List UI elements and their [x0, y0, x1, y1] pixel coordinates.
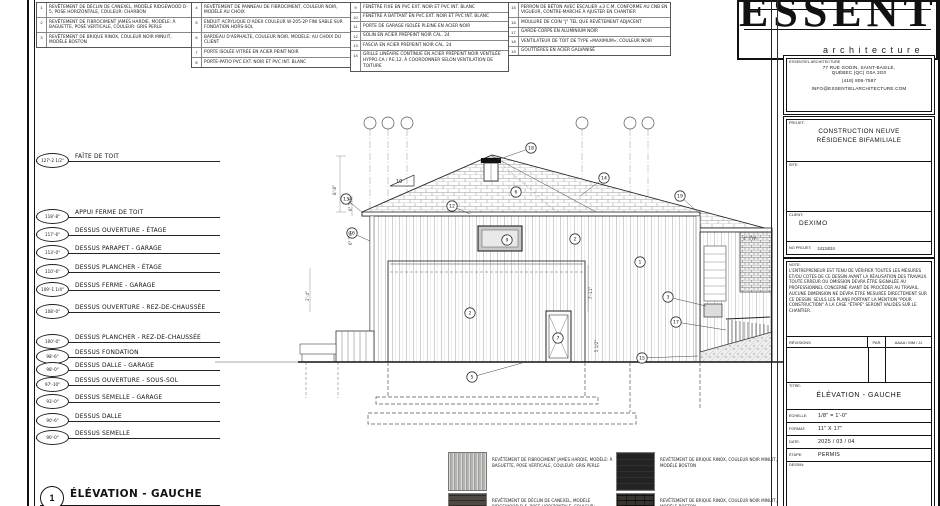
svg-text:3: 3 — [667, 295, 670, 301]
svg-text:9: 9 — [506, 238, 509, 244]
client-name: DEXIMO — [799, 220, 931, 227]
svg-text:1: 1 — [639, 260, 642, 266]
drawing-sheet: 10 — [0, 0, 940, 506]
site-label: SITE: — [787, 162, 931, 168]
svg-text:19: 19 — [677, 194, 683, 200]
keynote-row: 19GOUTTIÈRES EN ACIER GALVANISÉ — [509, 47, 670, 56]
keynote-row: 15PERRON DE BÉTON AVEC ESCALIER ±3 C.M. … — [509, 3, 670, 18]
keynote-column-2: 4REVÊTEMENT DE PANNEAU DE FIBROCIMENT, C… — [191, 2, 351, 68]
svg-text:5: 5 — [471, 375, 474, 381]
legend-item: REVÊTEMENT DE FIBROCIMENT JAMES HARDIE, … — [448, 452, 614, 491]
keynote-row: 17GARDE-CORPS EN ALUMINIUM NOIR — [509, 28, 670, 38]
level-label: DESSUS PLANCHER - ÉTAGE — [75, 265, 162, 271]
keynote-text: SOLIN EN ACIER PRÉPEINT NOIR CAL. 24 — [361, 32, 452, 41]
keynote-number: 16 — [509, 18, 519, 27]
stage-value: PERMIS — [818, 452, 840, 458]
porch-steps — [300, 331, 374, 398]
view-title-label: ÉLÉVATION - GAUCHE — [70, 488, 202, 500]
keynote-text: FASCIA EN ACIER PRÉPEINT NOIR CAL. 24 — [361, 41, 454, 50]
project-info-box: PROJET: CONSTRUCTION NEUVE RÉSIDENCE BIF… — [783, 116, 935, 258]
svg-text:8'-8": 8'-8" — [332, 185, 337, 195]
project-line-2: RÉSIDENCE BIFAMILIALE — [787, 137, 931, 144]
level-label: DESSUS FONDATION — [75, 350, 139, 356]
keynote-row: 4REVÊTEMENT DE PANNEAU DE FIBROCIMENT, C… — [192, 3, 350, 18]
level-label: DESSUS FERME - GARAGE — [75, 283, 155, 289]
notes-box: NOTE: L'ENTREPRENEUR EST TENU DE VÉRIFIE… — [783, 258, 935, 506]
fascia-main — [362, 212, 700, 216]
keynote-text: PORTE ISOLÉE VITRÉE EN ACIER PEINT NOIR — [202, 48, 301, 57]
sheet-left-border — [27, 0, 35, 506]
drawing-number-section: DESSIN: — [787, 462, 931, 468]
svg-text:6" TYP.: 6" TYP. — [348, 197, 353, 211]
keynote-text: REVÊTEMENT DE BRIQUE RINOX, COULEUR NOIR… — [47, 33, 191, 47]
level-label: APPUI FERME DE TOIT — [75, 210, 143, 216]
keynote-row: 5ENDUIT ACRYLIQUE D'ADEX COULEUR W-205-2… — [192, 18, 350, 33]
keynote-number: 3 — [37, 33, 47, 47]
level-label: DESSUS SEMELLE — [75, 431, 130, 437]
grid-bubble — [624, 117, 636, 129]
material-label: REVÊTEMENT DE BRIQUE RINOX, COULEUR NOIR… — [660, 452, 782, 491]
project-line-1: CONSTRUCTION NEUVE — [787, 128, 931, 135]
fascia-garage — [700, 228, 772, 232]
keynote-text: REVÊTEMENT DE FIBROCIMENT JAMES HARDIE, … — [47, 18, 191, 32]
material-swatch — [448, 493, 487, 506]
keynote-number: 2 — [37, 18, 47, 32]
revisions-col-label: RÉVISIONS — [787, 340, 867, 345]
slope-indicator: 10 — [390, 175, 414, 186]
level-marker: 100'-0"DESSUS PLANCHER - REZ-DE-CHAUSSÉE — [36, 328, 220, 343]
project-number-label: No PROJET: — [787, 245, 813, 251]
legend-item: REVÊTEMENT DE DÉCLIN DE CANEXEL, MODÈLE … — [448, 493, 614, 506]
drawing-number-label: DESSIN: — [787, 462, 931, 468]
material-swatch — [616, 493, 655, 506]
sheet-title: ÉLÉVATION - GAUCHE — [787, 392, 931, 399]
keynote-number: 11 — [351, 22, 361, 31]
grid-bubble — [401, 117, 413, 129]
project-label: PROJET: — [787, 120, 931, 126]
keynote-text: REVÊTEMENT DE DÉCLIN DE CANEXEL, MODÈLE … — [47, 3, 191, 17]
scale-row: ÉCHELLE: 1/8" = 1'-0" — [787, 410, 931, 423]
keynote-row: 18VENTILATEUR DE TOIT DE TYPE «MAXIMUM»,… — [509, 37, 670, 47]
stage-label: ÉTAPE: — [787, 452, 818, 458]
keynote-number: 19 — [509, 47, 519, 56]
keynote-text: BARDEAU D'ASPHALTE, COULEUR NOIR, MODÈLE… — [202, 33, 350, 47]
material-swatch — [448, 452, 487, 491]
firm-phone: (418) 806-7587 — [787, 78, 931, 83]
revisions-header: RÉVISIONS PAR AAAA / MM / JJ — [787, 337, 931, 348]
keynote-text: PERRON DE BÉTON AVEC ESCALIER ±3 C.M. CO… — [519, 3, 670, 17]
keynote-number: 13 — [351, 41, 361, 50]
svg-text:2: 2 — [469, 311, 472, 317]
level-marker: 90'-0"DESSUS SEMELLE — [36, 424, 220, 439]
firm-info-box: ESSENTIEL ARCHITECTURE 77 RUE GODIN, SAI… — [783, 55, 935, 115]
keynote-row: 6BARDEAU D'ASPHALTE, COULEUR NOIR, MODÈL… — [192, 33, 350, 48]
level-marker: 117'-6"DESSUS OUVERTURE - ÉTAGE — [36, 221, 220, 236]
revisions-date-label: AAAA / MM / JJ — [886, 337, 931, 347]
svg-text:12: 12 — [449, 204, 455, 210]
keynote-row: 7PORTE ISOLÉE VITRÉE EN ACIER PEINT NOIR — [192, 48, 350, 58]
grid-bubble — [576, 117, 588, 129]
title-label: TITRE: — [787, 383, 931, 389]
keynote-number: 9 — [351, 3, 361, 12]
main-wall — [370, 216, 700, 362]
keynote-number: 4 — [192, 3, 202, 17]
keynote-number: 18 — [509, 37, 519, 46]
keynote-row: 12SOLIN EN ACIER PRÉPEINT NOIR CAL. 24 — [351, 32, 508, 42]
keynote-row: 1REVÊTEMENT DE DÉCLIN DE CANEXEL, MODÈLE… — [37, 3, 191, 18]
svg-text:6" TYP.: 6" TYP. — [348, 231, 353, 245]
level-elevation: 109'-1 1/4" — [36, 282, 69, 297]
keynote-number: 1 — [37, 3, 47, 17]
svg-text:5 1/2": 5 1/2" — [594, 340, 599, 353]
keynote-column-1: 1REVÊTEMENT DE DÉCLIN DE CANEXEL, MODÈLE… — [36, 2, 192, 48]
material-label: REVÊTEMENT DE DÉCLIN DE CANEXEL, MODÈLE … — [492, 493, 614, 506]
level-label: DESSUS PLANCHER - REZ-DE-CHAUSSÉE — [75, 335, 201, 341]
level-label: DESSUS PARAPET - GARAGE — [75, 246, 162, 252]
svg-text:6: 6 — [515, 190, 518, 196]
svg-text:18: 18 — [528, 146, 534, 152]
keynote-row: 10FENÊTRE À BATTANT EN PVC EXT. NOIR ET … — [351, 13, 508, 23]
title-block-frame-inner — [777, 0, 778, 506]
project-number: 24134/24 — [817, 246, 834, 251]
keynote-text: MOULURE DE COIN "J" TEL QUE REVÊTEMENT A… — [519, 18, 644, 27]
keynote-number: 15 — [509, 3, 519, 17]
client-section: CLIENT: DEXIMO — [787, 212, 931, 242]
keynote-row: 3REVÊTEMENT DE BRIQUE RINOX, COULEUR NOI… — [37, 33, 191, 47]
keynote-text: GOUTTIÈRES EN ACIER GALVANISÉ — [519, 47, 597, 56]
revisions-body — [787, 348, 931, 383]
date-row: DATE: 2025 / 03 / 04 — [787, 436, 931, 449]
keynote-row: 11PORTE DE GARAGE ISOLÉE PLEINE EN ACIER… — [351, 22, 508, 32]
keynote-row: 2REVÊTEMENT DE FIBROCIMENT JAMES HARDIE,… — [37, 18, 191, 33]
svg-text:2'-4": 2'-4" — [305, 291, 310, 301]
scale-value: 1/8" = 1'-0" — [818, 413, 847, 419]
revisions-par-label: PAR — [867, 337, 886, 347]
keynote-number: 8 — [192, 58, 202, 67]
level-elevation: 90'-0" — [36, 430, 69, 445]
keynote-text: GRILLE LINÉAIRE CONTINUE EN ACIER PRÉPEI… — [361, 51, 508, 71]
keynote-text: FENÊTRE À BATTANT EN PVC EXT. NOIR ET PV… — [361, 13, 491, 22]
stage-row: ÉTAPE: PERMIS — [787, 449, 931, 462]
level-elevation: 108'-0" — [36, 304, 69, 319]
keynote-text: ENDUIT ACRYLIQUE D'ADEX COULEUR W-205-2P… — [202, 18, 350, 32]
level-marker: 93'-0"DESSUS SEMELLE - GARAGE — [36, 388, 220, 403]
client-label: CLIENT: — [787, 212, 931, 218]
keynote-table: 1REVÊTEMENT DE DÉCLIN DE CANEXEL, MODÈLE… — [36, 2, 671, 72]
view-number-bubble: 1 — [40, 486, 64, 506]
keynote-number: 5 — [192, 18, 202, 32]
note-text: L'ENTREPRENEUR EST TENU DE VÉRIFIER TOUT… — [787, 268, 931, 337]
keynote-row: 13FASCIA EN ACIER PRÉPEINT NOIR CAL. 24 — [351, 41, 508, 51]
firm-address-2: QUÉBEC (QC) G0A 3G0 — [787, 70, 931, 75]
svg-text:17: 17 — [673, 320, 679, 326]
keynote-text: FENÊTRE FIXE EN PVC EXT. NOIR ET PVC INT… — [361, 3, 477, 12]
format-value: 11" X 17" — [818, 426, 842, 432]
roof-vent — [481, 158, 501, 181]
level-label: FAÎTE DE TOIT — [75, 154, 119, 160]
keynote-text: PORTE-PATIO PVC EXT. NOIR ET PVC INT. BL… — [202, 58, 308, 67]
level-marker: 108'-0"DESSUS OUVERTURE - REZ-DE-CHAUSSÉ… — [36, 298, 220, 313]
keynote-row: 8PORTE-PATIO PVC EXT. NOIR ET PVC INT. B… — [192, 58, 350, 67]
level-marker: 98'-0"DESSUS DALLE - GARAGE — [36, 356, 220, 371]
level-label: DESSUS OUVERTURE - ÉTAGE — [75, 228, 167, 234]
level-marker: 97'-10"DESSUS OUVERTURE - SOUS-SOL — [36, 371, 220, 386]
level-label: DESSUS DALLE - GARAGE — [75, 363, 154, 369]
keynote-text: PORTE DE GARAGE ISOLÉE PLEINE EN ACIER N… — [361, 22, 472, 31]
level-marker: 118'-8"APPUI FERME DE TOIT — [36, 203, 220, 218]
svg-text:7'-11": 7'-11" — [588, 287, 593, 300]
level-elevation: 127'-2 1/2" — [36, 153, 69, 168]
material-label: REVÊTEMENT DE FIBROCIMENT JAMES HARDIE, … — [492, 452, 614, 491]
svg-text:14: 14 — [601, 176, 607, 182]
project-section: PROJET: CONSTRUCTION NEUVE RÉSIDENCE BIF… — [787, 120, 931, 162]
firm-email: INFO@ESSENTIELARCHITECTURE.COM — [787, 86, 931, 91]
legend-item: REVÊTEMENT DE BRIQUE RINOX, COULEUR NOIR… — [616, 452, 782, 491]
keynote-number: 12 — [351, 32, 361, 41]
level-label: DESSUS OUVERTURE - SOUS-SOL — [75, 378, 178, 384]
level-label: DESSUS DALLE — [75, 414, 122, 420]
foundation-dashed — [368, 362, 700, 424]
keynote-column-4: 15PERRON DE BÉTON AVEC ESCALIER ±3 C.M. … — [508, 2, 671, 56]
legend-item: REVÊTEMENT DE BRIQUE RINOX, COULEUR NOIR… — [616, 493, 782, 506]
svg-text:15: 15 — [639, 356, 645, 362]
grid-bubble — [642, 117, 654, 129]
keynote-number: 14 — [351, 51, 361, 71]
keynote-text: REVÊTEMENT DE PANNEAU DE FIBROCIMENT, CO… — [202, 3, 350, 17]
svg-text:4" TYP.: 4" TYP. — [743, 236, 757, 241]
material-swatch — [616, 452, 655, 491]
keynote-text: VENTILATEUR DE TOIT DE TYPE «MAXIMUM», C… — [519, 37, 654, 46]
level-label: DESSUS OUVERTURE - REZ-DE-CHAUSSÉE — [75, 305, 205, 311]
keynote-number: 6 — [192, 33, 202, 47]
date-value: 2025 / 03 / 04 — [818, 439, 855, 445]
level-marker: 110'-6"DESSUS PLANCHER - ÉTAGE — [36, 258, 220, 273]
date-label: DATE: — [787, 439, 818, 445]
scale-label: ÉCHELLE: — [787, 413, 818, 419]
material-label: REVÊTEMENT DE BRIQUE RINOX, COULEUR NOIR… — [660, 493, 782, 506]
level-marker: 127'-2 1/2"FAÎTE DE TOIT — [36, 147, 220, 162]
keynote-row: 14GRILLE LINÉAIRE CONTINUE EN ACIER PRÉP… — [351, 51, 508, 71]
level-label: DESSUS SEMELLE - GARAGE — [75, 395, 162, 401]
view-title: 1 ÉLÉVATION - GAUCHE — [40, 484, 220, 506]
keynote-number: 10 — [351, 13, 361, 22]
grid-bubble — [382, 117, 394, 129]
keynote-text: GARDE-CORPS EN ALUMINIUM NOIR — [519, 28, 600, 37]
level-marker: 109'-1 1/4"DESSUS FERME - GARAGE — [36, 276, 220, 291]
window — [478, 226, 522, 251]
format-label: FORMAT: — [787, 426, 818, 432]
level-marker: 113'-0"DESSUS PARAPET - GARAGE — [36, 239, 220, 254]
level-marker: 90'-6"DESSUS DALLE — [36, 407, 220, 422]
keynote-row: 16MOULURE DE COIN "J" TEL QUE REVÊTEMENT… — [509, 18, 670, 28]
grid-bubble — [364, 117, 376, 129]
site-section: SITE: — [787, 162, 931, 212]
svg-text:2: 2 — [574, 237, 577, 243]
slope-value: 10 — [396, 179, 402, 185]
keynote-number: 17 — [509, 28, 519, 37]
keynote-row: 9FENÊTRE FIXE EN PVC EXT. NOIR ET PVC IN… — [351, 3, 508, 13]
title-section: TITRE: ÉLÉVATION - GAUCHE — [787, 383, 931, 410]
svg-text:7: 7 — [557, 336, 560, 342]
project-number-section: No PROJET: 24134/24 — [787, 242, 931, 254]
keynote-number: 7 — [192, 48, 202, 57]
garage-right — [700, 232, 772, 362]
keynote-column-3: 9FENÊTRE FIXE EN PVC EXT. NOIR ET PVC IN… — [350, 2, 509, 72]
format-row: FORMAT: 11" X 17" — [787, 423, 931, 436]
